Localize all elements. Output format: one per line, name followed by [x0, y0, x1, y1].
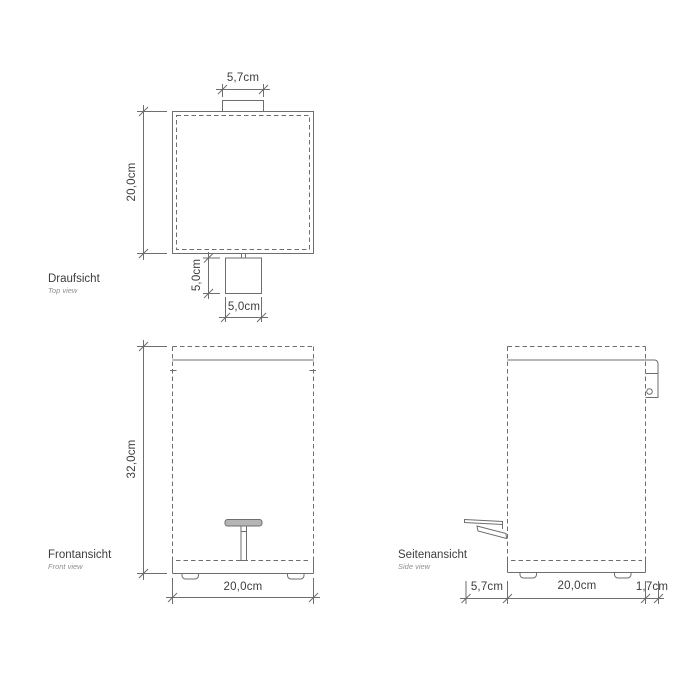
front-view-label: Frontansicht Front view: [48, 549, 111, 571]
side-left-foot: [520, 573, 537, 579]
front-view-title: Frontansicht: [48, 549, 111, 561]
side-view: [460, 347, 664, 605]
dim-top-depth: 20,0cm: [126, 163, 138, 202]
top-dim-pedal-depth-lines: [203, 252, 220, 299]
dim-side-pedal-projection: 5,7cm: [471, 581, 503, 593]
top-view: [137, 84, 314, 322]
top-view-body-outline: [173, 112, 314, 254]
top-view-title: Draufsicht: [48, 273, 100, 285]
top-dim-depth-lines: [137, 105, 167, 260]
side-view-title: Seitenansicht: [398, 549, 467, 561]
dim-side-hinge-projection: 1,7cm: [636, 581, 668, 593]
top-view-pedal-stem: [242, 254, 246, 259]
front-right-foot: [288, 574, 305, 580]
dim-top-pedal-depth: 5,0cm: [191, 259, 203, 291]
front-left-foot: [182, 574, 199, 580]
top-view-pedal: [226, 258, 262, 294]
dim-side-depth: 20,0cm: [558, 580, 597, 592]
top-view-label: Draufsicht Top view: [48, 273, 100, 295]
dim-top-pedal-width: 5,0cm: [228, 301, 260, 313]
side-pedal-plate: [465, 520, 503, 525]
front-dim-height-lines: [137, 340, 167, 580]
side-view-label: Seitenansicht Side view: [398, 549, 467, 571]
dim-top-hinge-width: 5,7cm: [227, 72, 259, 84]
side-right-foot: [615, 573, 632, 579]
dim-front-width: 20,0cm: [224, 581, 263, 593]
top-view-subtitle: Top view: [48, 286, 100, 295]
top-dim-hinge-width-lines: [216, 84, 270, 97]
front-view: [137, 340, 320, 604]
front-pedal-bar: [225, 520, 262, 527]
side-hinge-pin: [647, 389, 653, 395]
linework-svg: [0, 0, 700, 700]
technical-drawing-page: 5,7cm 20,0cm 5,0cm 5,0cm 32,0cm 20,0cm 5…: [0, 0, 700, 700]
top-view-lid-hinge: [223, 101, 264, 113]
front-view-subtitle: Front view: [48, 562, 111, 571]
side-view-subtitle: Side view: [398, 562, 467, 571]
dim-front-height: 32,0cm: [126, 440, 138, 479]
